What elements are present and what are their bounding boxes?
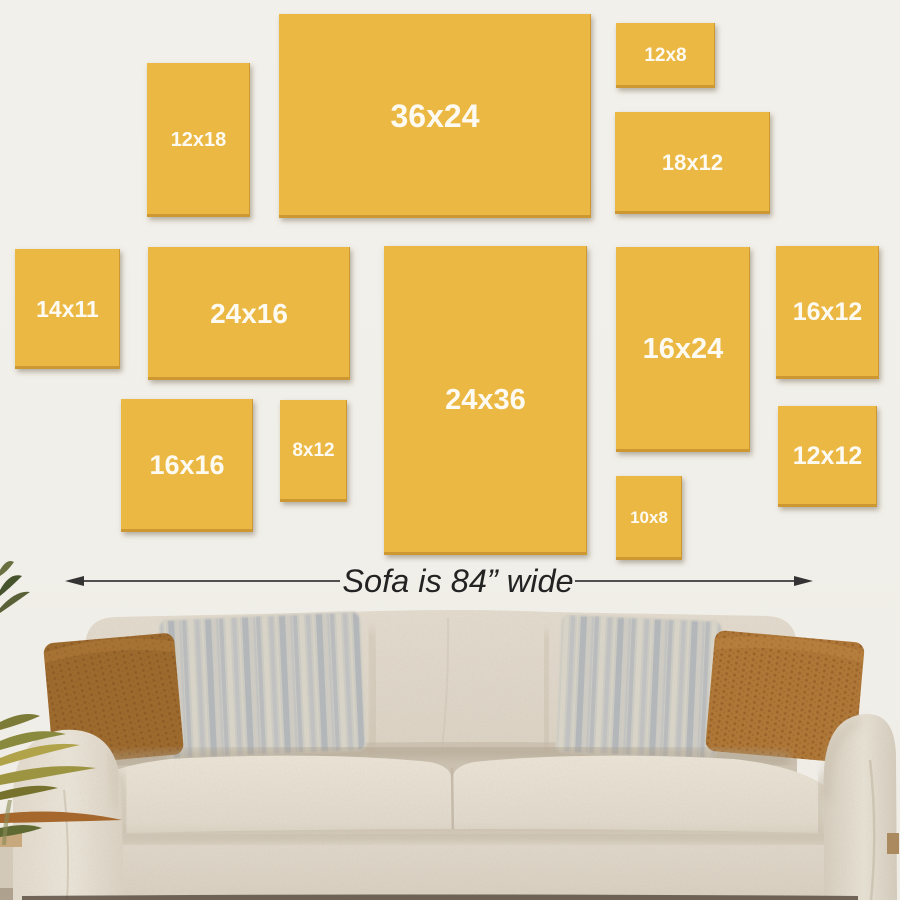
- svg-text:Sofa is 84” wide: Sofa is 84” wide: [342, 563, 573, 599]
